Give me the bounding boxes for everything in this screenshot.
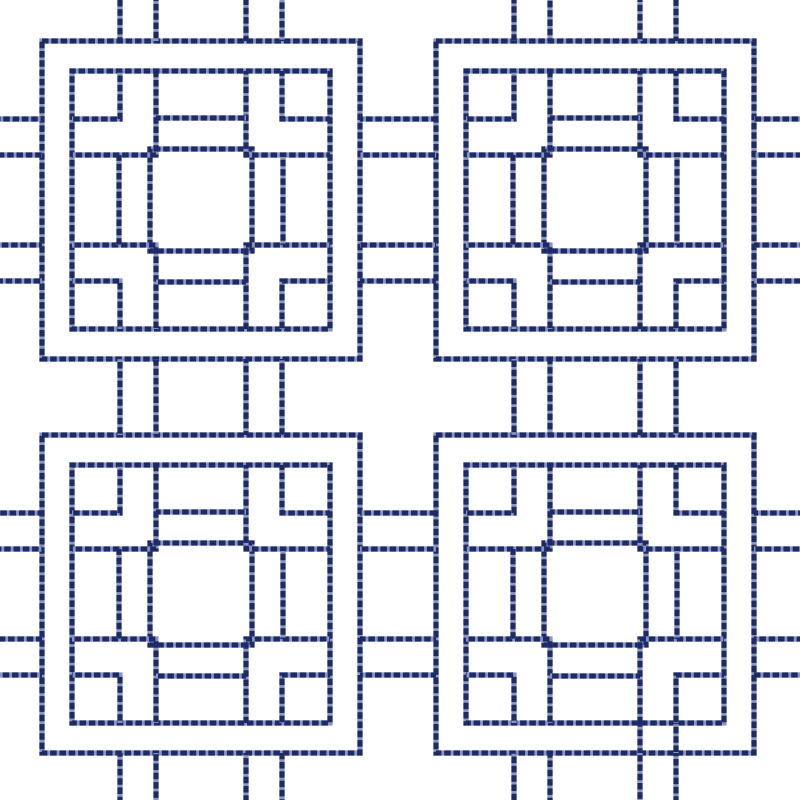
motif-2: [436, 41, 754, 359]
motif-4: [436, 435, 754, 753]
vertical-connectors: [120, 359, 676, 435]
motif-3: [42, 435, 360, 753]
motif-1: [42, 41, 360, 359]
stitch-pattern-canvas: [0, 0, 800, 800]
motif-grid: [42, 41, 754, 753]
stitch-pattern-svg: [0, 0, 800, 800]
travel-segments: [640, 723, 676, 753]
horizontal-connectors: [360, 119, 436, 675]
